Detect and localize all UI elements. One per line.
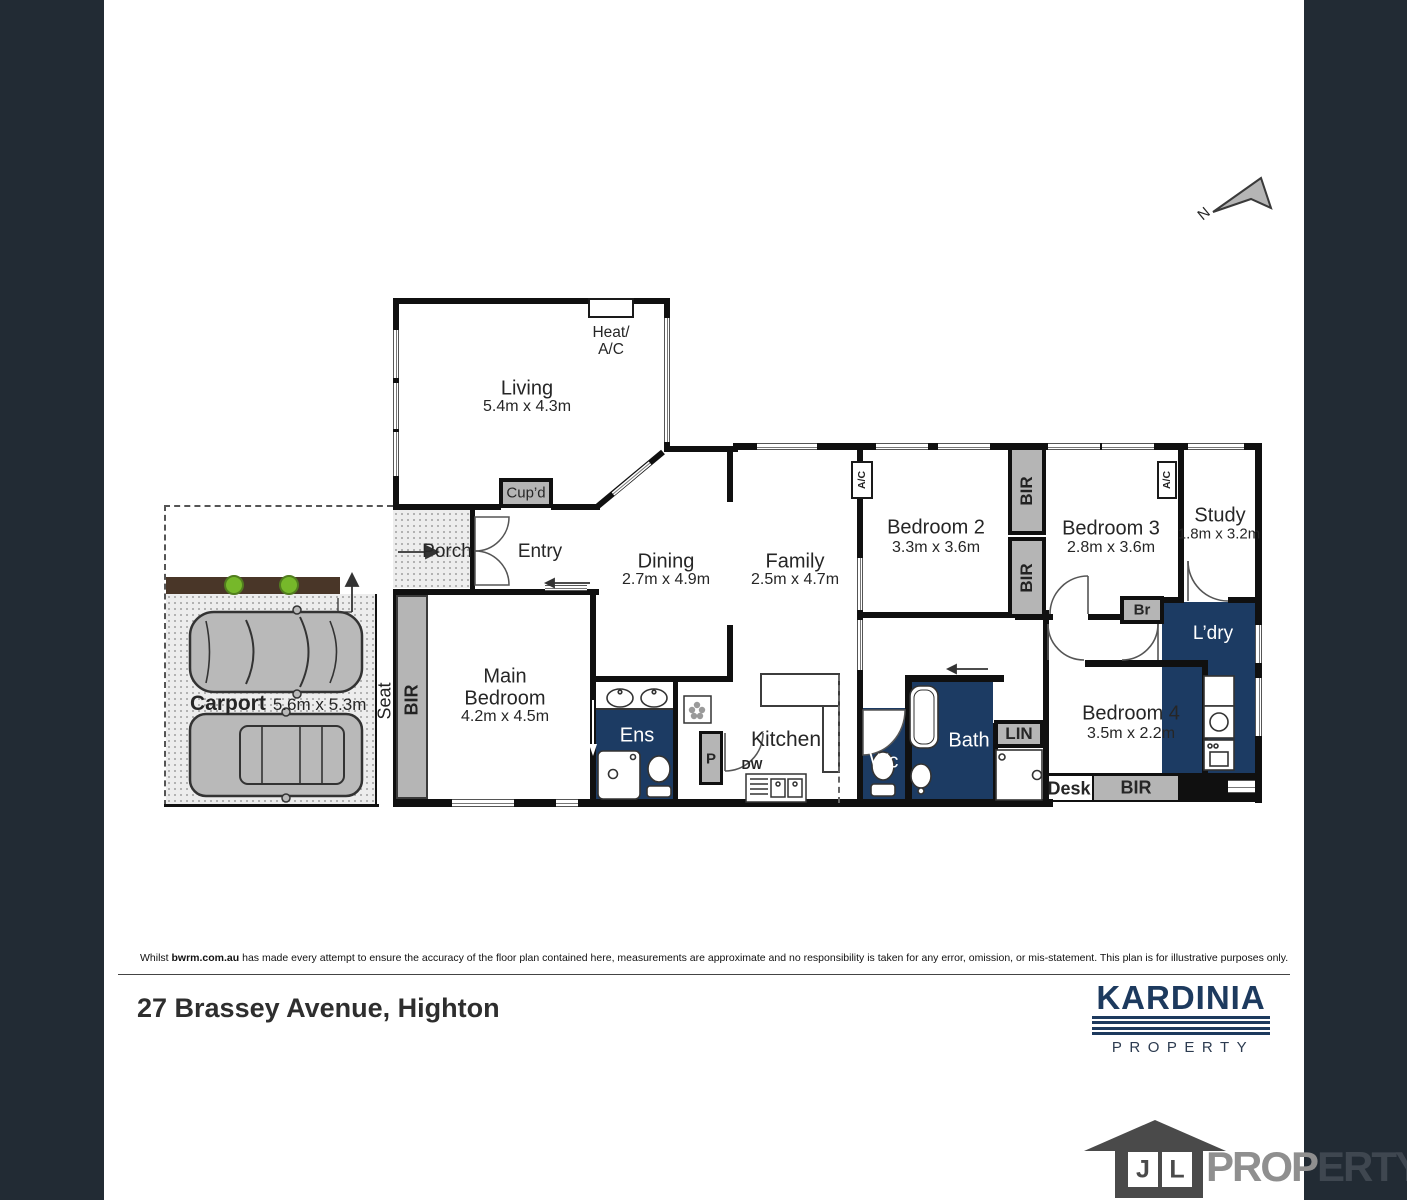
wall — [857, 612, 1015, 618]
window — [857, 620, 863, 670]
bir2-label: BIR — [1017, 476, 1037, 505]
jl-property-text: PROPERTY — [1206, 1143, 1407, 1191]
carport-bottom-line — [164, 804, 379, 807]
wc-label: Wc — [870, 751, 899, 774]
laundry-label: L’dry — [1193, 623, 1233, 645]
bedroom2-label: Bedroom 2 — [887, 517, 985, 540]
porch-label: Porch — [422, 541, 472, 563]
heat-ac-label-1: Heat/ — [592, 324, 629, 342]
jl-text-dark: ERTY — [1317, 1143, 1407, 1190]
window — [938, 443, 990, 450]
window — [1102, 443, 1154, 450]
bedroom4-label: Bedroom 4 — [1082, 703, 1180, 726]
jl-letter-j: J — [1136, 1156, 1150, 1185]
cooktop-icon — [689, 702, 705, 719]
carport-dims: 5.6m x 5.3m — [273, 695, 367, 715]
window — [1228, 780, 1256, 793]
kitchen-bench — [760, 673, 840, 707]
window — [452, 799, 514, 807]
footer-divider — [118, 974, 1290, 975]
bedroom3-label: Bedroom 3 — [1062, 518, 1160, 541]
window — [556, 799, 578, 807]
heater-unit — [588, 298, 634, 318]
window — [393, 330, 399, 378]
window — [393, 383, 399, 429]
kardinia-line — [1092, 1021, 1270, 1024]
window — [393, 432, 399, 476]
entry-label: Entry — [518, 541, 562, 563]
window — [1255, 625, 1262, 663]
north-label: N — [1194, 204, 1213, 224]
wall — [673, 682, 678, 803]
wall — [727, 625, 733, 682]
window — [1048, 443, 1100, 450]
family-dims: 2.5m x 4.7m — [751, 571, 839, 589]
entry-double-door-icon — [475, 517, 509, 585]
bedroom4-dims: 3.5m x 2.2m — [1087, 725, 1175, 743]
study-dims: 1.8m x 3.2m — [1178, 526, 1261, 543]
kardinia-line — [1092, 1027, 1270, 1030]
wall — [551, 504, 600, 510]
window — [664, 318, 670, 442]
wall — [727, 446, 733, 502]
ac-label-bed2: A/C — [856, 471, 868, 489]
broom-label: Br — [1134, 602, 1151, 619]
jl-house-icon — [1115, 1146, 1203, 1198]
bir-main-label: BIR — [402, 685, 423, 716]
window — [876, 443, 928, 450]
window — [1255, 678, 1262, 736]
address-title: 27 Brassey Avenue, Highton — [137, 993, 500, 1024]
study-label: Study — [1194, 505, 1245, 528]
wall — [905, 675, 912, 804]
window — [757, 443, 817, 450]
wall — [905, 675, 1004, 682]
jl-letter-l: L — [1169, 1156, 1184, 1185]
wall — [1088, 614, 1122, 620]
wall — [1202, 660, 1208, 775]
garden-bed — [166, 577, 340, 594]
living-dims: 5.4m x 4.3m — [483, 398, 571, 416]
window — [1188, 443, 1244, 450]
cupboard-label: Cup’d — [506, 485, 545, 502]
bedroom3-dims: 2.8m x 3.6m — [1067, 539, 1155, 557]
kardinia-name: KARDINIA — [1092, 983, 1270, 1013]
fridge-space-line — [838, 675, 840, 803]
window — [857, 558, 863, 610]
kardinia-line — [1092, 1032, 1270, 1035]
right-sidebar — [1304, 0, 1407, 1200]
bir4-label: BIR — [1121, 778, 1152, 799]
kardinia-logo: KARDINIA PROPERTY — [1092, 983, 1270, 1056]
wall — [1085, 660, 1205, 667]
heat-ac-label-2: A/C — [598, 341, 624, 359]
disclaimer: Whilst bwrm.com.au has made every attemp… — [140, 952, 1280, 964]
disclaimer-rest: has made every attempt to ensure the acc… — [239, 952, 1288, 964]
bir3-label: BIR — [1017, 563, 1037, 592]
wall — [1228, 597, 1258, 603]
kardinia-tagline: PROPERTY — [1096, 1039, 1270, 1056]
left-sidebar — [0, 0, 104, 1200]
ensuite-vanity — [596, 682, 673, 710]
disclaimer-prefix: Whilst — [140, 952, 172, 964]
ensuite-label: Ens — [620, 725, 654, 748]
main-bedroom-label-1: Main — [483, 666, 526, 689]
north-arrow-icon — [1213, 178, 1271, 212]
seat-label: Seat — [375, 682, 396, 719]
bedroom2-dims: 3.3m x 3.6m — [892, 539, 980, 557]
kitchen-label: Kitchen — [751, 728, 821, 752]
ac-label-bed3: A/C — [1161, 471, 1173, 489]
desk-label: Desk — [1047, 779, 1090, 800]
floorplan-page: N Living 5.4m x 4.3m Heat/ A/C Cup’d Por… — [0, 0, 1407, 1200]
wall — [1255, 443, 1262, 803]
wall — [1043, 610, 1049, 802]
pantry-label: P — [706, 751, 716, 768]
carport-label-row: Carport 5.6m x 5.3m — [190, 692, 366, 716]
dishwasher-label: DW — [742, 758, 763, 772]
main-bedroom-dims: 4.2m x 4.5m — [461, 708, 549, 726]
bath-label: Bath — [948, 730, 989, 753]
wall — [393, 504, 501, 510]
jl-text-light: PROP — [1206, 1143, 1317, 1190]
carport-label: Carport — [190, 692, 266, 716]
disclaimer-brand: bwrm.com.au — [172, 952, 240, 964]
jl-roof-icon — [1084, 1120, 1226, 1151]
window — [545, 585, 587, 591]
linen-label: LIN — [1005, 724, 1032, 744]
dining-dims: 2.7m x 4.9m — [622, 571, 710, 589]
